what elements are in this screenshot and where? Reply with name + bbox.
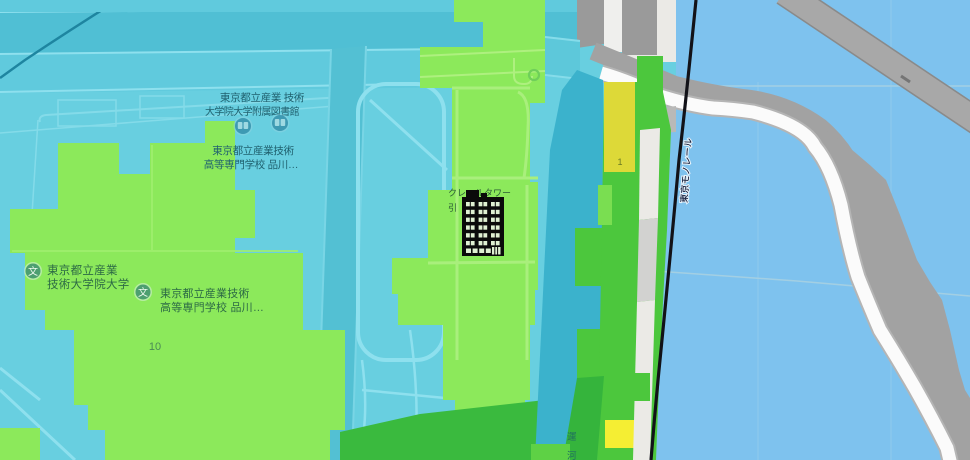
- svg-text:文: 文: [28, 265, 38, 278]
- svg-text:引: 引: [448, 203, 457, 213]
- svg-text:東京都立産業 技術: 東京都立産業 技術: [220, 91, 305, 104]
- svg-text:1: 1: [617, 157, 622, 167]
- svg-text:高等専門学校 品川…: 高等専門学校 品川…: [160, 300, 264, 314]
- svg-text:文: 文: [138, 286, 148, 299]
- svg-text:東京都立産業技術: 東京都立産業技術: [160, 286, 250, 300]
- svg-text:東京都立産業: 東京都立産業: [47, 263, 118, 277]
- svg-text:高等専門学校 品川…: 高等専門学校 品川…: [204, 158, 298, 171]
- svg-text:東京都立産業技術: 東京都立産業技術: [212, 144, 294, 157]
- svg-text:クレールタワー: クレールタワー: [448, 188, 511, 198]
- svg-text:10: 10: [149, 341, 161, 353]
- svg-text:河: 河: [567, 450, 577, 460]
- svg-text:運: 運: [567, 432, 577, 443]
- svg-text:技術大学院大学: 技術大学院大学: [47, 277, 130, 291]
